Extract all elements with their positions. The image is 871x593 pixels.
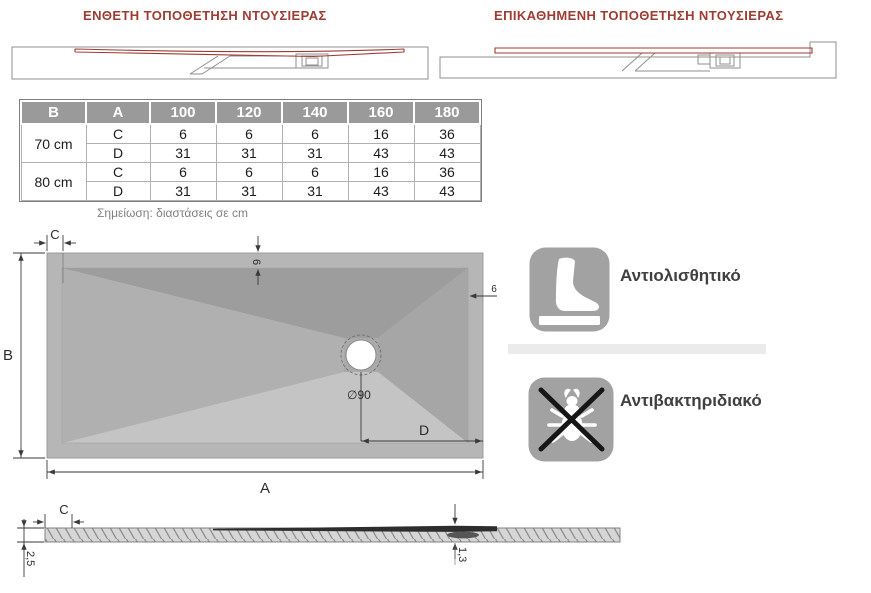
section-dimension-thickness: 2,5 <box>17 519 44 577</box>
value-cell: 36 <box>414 163 480 182</box>
units-note: Σημείωση: διαστάσεις σε cm <box>97 206 248 220</box>
ground-bar <box>539 316 600 325</box>
size-cell: 70 cm <box>21 124 86 163</box>
spec-sheet: ΕΝΘΕΤΗ ΤΟΠΟΘΕΤΗΣΗ ΝΤΟΥΣΙΕΡΑΣ ΕΠΙΚΑΘΗΜΕΝΗ… <box>0 0 871 593</box>
svg-text:2,5: 2,5 <box>24 551 36 566</box>
value-cell: 6 <box>216 124 282 144</box>
value-cell: 6 <box>150 163 216 182</box>
dimensions-table: B A 100 120 140 160 180 70 cm C 6 6 6 16 <box>19 99 482 202</box>
dim-letter-cell: C <box>86 124 150 144</box>
value-cell: 6 <box>282 124 348 144</box>
tray-profile-red <box>75 49 404 57</box>
value-cell: 31 <box>282 182 348 201</box>
table-row: D 31 31 31 43 43 <box>21 182 480 201</box>
svg-text:6: 6 <box>250 259 262 265</box>
col-header-120: 120 <box>216 101 282 124</box>
value-cell: 31 <box>282 144 348 163</box>
table-row: D 31 31 31 43 43 <box>21 144 480 163</box>
tray-profile-section: C 2,5 1,3 <box>0 497 660 589</box>
value-cell: 6 <box>150 124 216 144</box>
svg-text:6: 6 <box>491 284 497 295</box>
value-cell: 31 <box>150 182 216 201</box>
drain-bump <box>447 532 479 539</box>
inset-installation-diagram <box>8 36 432 82</box>
dim-letter-cell: D <box>86 144 150 163</box>
col-header-a: A <box>86 101 150 124</box>
value-cell: 43 <box>348 182 414 201</box>
value-cell: 43 <box>414 182 480 201</box>
col-header-100: 100 <box>150 101 216 124</box>
dimension-b: B <box>3 253 45 458</box>
title-inset-installation: ΕΝΘΕΤΗ ΤΟΠΟΘΕΤΗΣΗ ΝΤΟΥΣΙΕΡΑΣ <box>83 8 317 23</box>
table-row: 80 cm C 6 6 6 16 36 <box>21 163 480 182</box>
value-cell: 6 <box>216 163 282 182</box>
svg-text:B: B <box>3 347 13 364</box>
svg-text:D: D <box>419 422 429 438</box>
table-header-row: B A 100 120 140 160 180 <box>21 101 480 124</box>
svg-text:1,3: 1,3 <box>456 547 468 562</box>
svg-text:C: C <box>50 227 59 242</box>
col-header-b: B <box>21 101 86 124</box>
title-ontop-installation: ΕΠΙΚΑΘΗΜΕΝΗ ΤΟΠΟΘΕΤΗΣΗ ΝΤΟΥΣΙΕΡΑΣ <box>494 8 772 23</box>
drain-pipe-lines <box>190 56 296 74</box>
drain-pipe-lines <box>622 53 710 71</box>
value-cell: 36 <box>414 124 480 144</box>
tray-profile-red <box>495 48 812 53</box>
tray-top-view: C B A 6 6 <box>0 226 510 498</box>
anti-slip-icon <box>529 247 610 332</box>
col-header-160: 160 <box>348 101 414 124</box>
value-cell: 31 <box>216 182 282 201</box>
anti-slip-label: Αντιολισθητικό <box>620 266 741 286</box>
value-cell: 16 <box>348 163 414 182</box>
svg-text:A: A <box>260 480 270 497</box>
value-cell: 31 <box>216 144 282 163</box>
col-header-180: 180 <box>414 101 480 124</box>
value-cell: 16 <box>348 124 414 144</box>
section-divider <box>508 344 766 354</box>
section-dimension-c: C <box>33 502 84 528</box>
col-header-140: 140 <box>282 101 348 124</box>
size-cell: 80 cm <box>21 163 86 201</box>
value-cell: 43 <box>414 144 480 163</box>
antibacterial-label: Αντιβακτηριδιακό <box>620 391 762 411</box>
dimension-a: A <box>47 460 483 497</box>
value-cell: 6 <box>282 163 348 182</box>
dim-letter-cell: C <box>86 163 150 182</box>
antibacterial-icon <box>528 377 614 462</box>
drain-diameter-label: ∅90 <box>347 388 371 402</box>
ontop-installation-diagram <box>437 36 841 82</box>
value-cell: 31 <box>150 144 216 163</box>
value-cell: 43 <box>348 144 414 163</box>
svg-text:C: C <box>59 502 68 517</box>
drain-circle <box>346 340 376 370</box>
table-row: 70 cm C 6 6 6 16 36 <box>21 124 480 144</box>
dim-letter-cell: D <box>86 182 150 201</box>
